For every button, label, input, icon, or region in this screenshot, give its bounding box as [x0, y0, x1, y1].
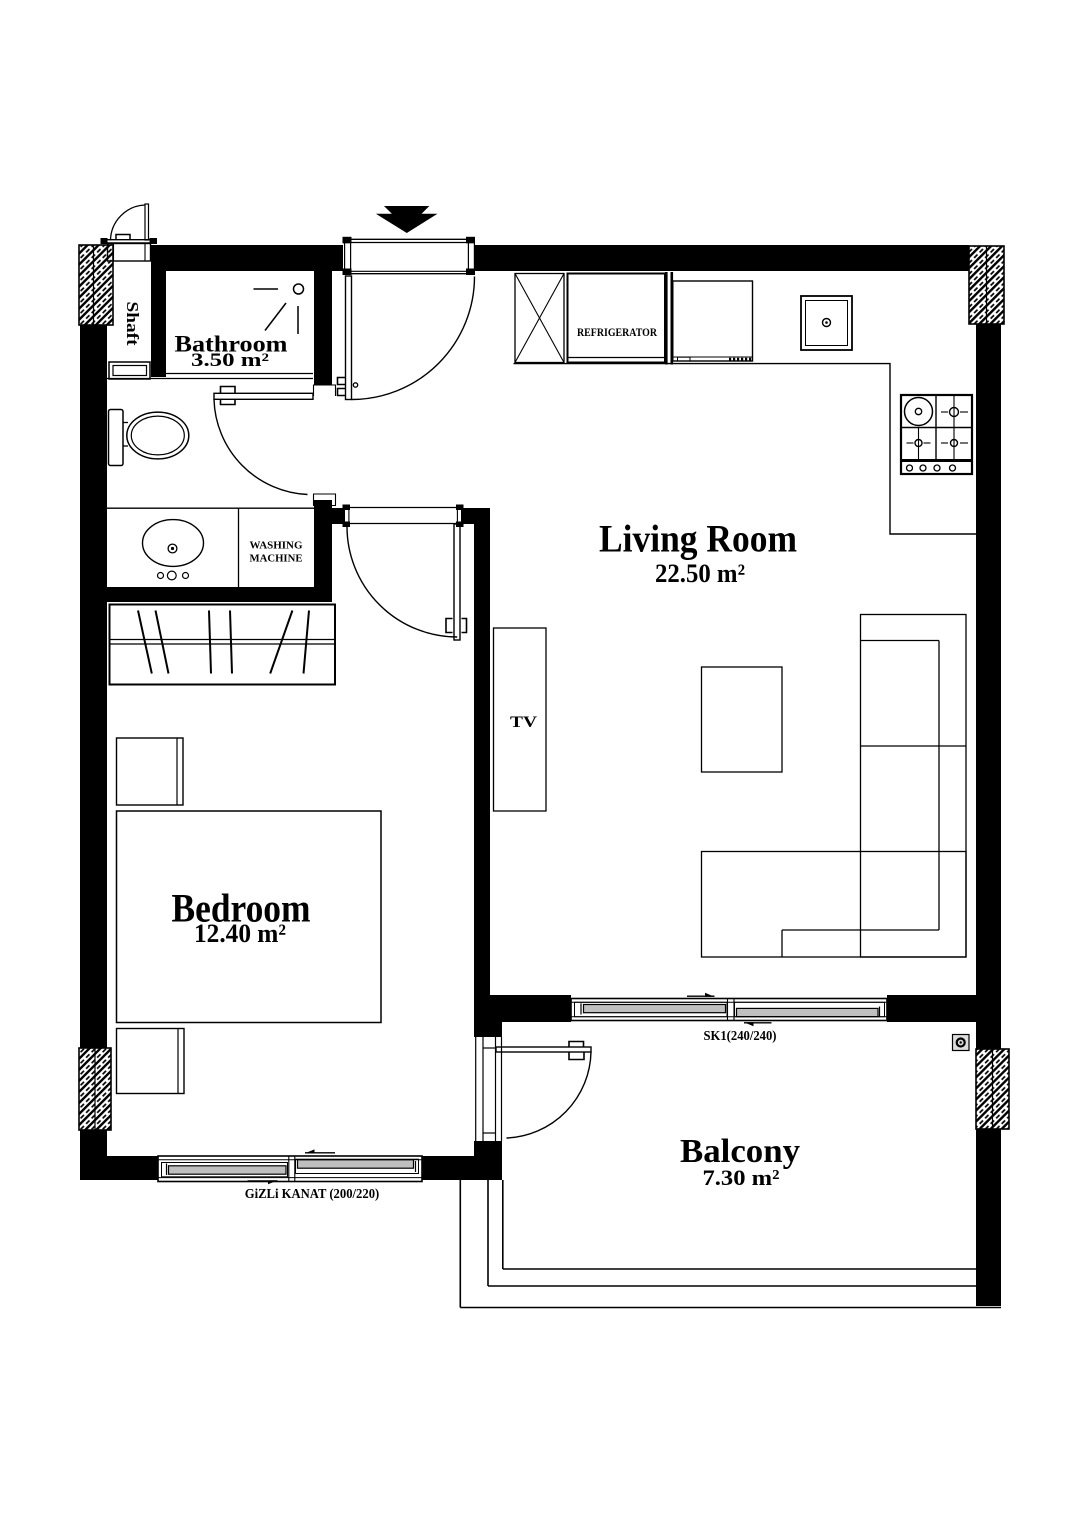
svg-text:Shaft: Shaft: [123, 302, 142, 346]
svg-text:SK1(240/240): SK1(240/240): [704, 1029, 777, 1044]
svg-text:MACHINE: MACHINE: [250, 553, 303, 565]
svg-text:GiZLi KANAT (200/220): GiZLi KANAT (200/220): [245, 1187, 380, 1202]
svg-text:12.40 m²: 12.40 m²: [194, 919, 286, 948]
svg-text:7.30 m²: 7.30 m²: [703, 1165, 780, 1190]
svg-text:WASHING: WASHING: [250, 540, 303, 552]
svg-text:3.50 m²: 3.50 m²: [191, 350, 269, 371]
svg-text:Living Room: Living Room: [599, 518, 797, 561]
svg-text:TV: TV: [510, 714, 538, 731]
svg-text:22.50 m²: 22.50 m²: [655, 559, 745, 588]
svg-text:REFRIGERATOR: REFRIGERATOR: [577, 325, 657, 339]
